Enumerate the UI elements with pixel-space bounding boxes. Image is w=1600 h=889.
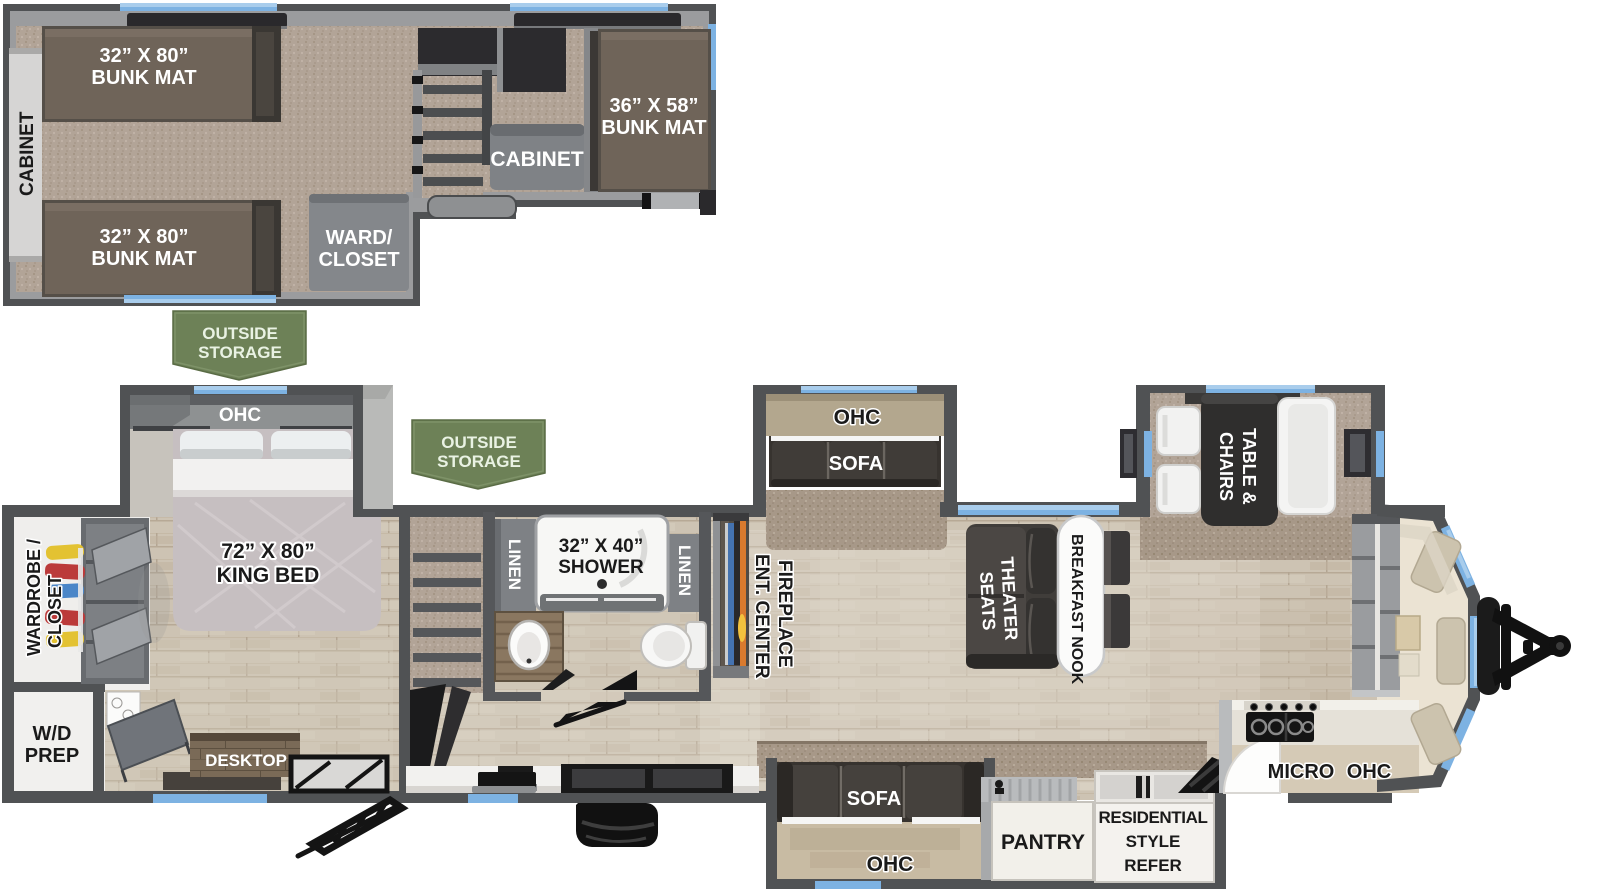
svg-text:32” X 80”: 32” X 80” xyxy=(100,45,189,67)
svg-text:STORAGE: STORAGE xyxy=(198,343,282,362)
svg-text:LINEN: LINEN xyxy=(675,545,694,596)
svg-text:OUTSIDE: OUTSIDE xyxy=(441,433,517,452)
svg-text:72” X 80”: 72” X 80” xyxy=(221,540,314,563)
svg-text:FIREPLACE: FIREPLACE xyxy=(774,560,795,668)
svg-text:CLOSET: CLOSET xyxy=(45,575,65,648)
svg-text:BUNK MAT: BUNK MAT xyxy=(91,67,196,89)
svg-text:CLOSET: CLOSET xyxy=(318,249,399,271)
svg-text:ENT. CENTER: ENT. CENTER xyxy=(751,554,772,679)
svg-text:PREP: PREP xyxy=(25,745,79,767)
svg-text:STORAGE: STORAGE xyxy=(437,452,521,471)
svg-text:SOFA: SOFA xyxy=(847,788,901,810)
svg-text:REFER: REFER xyxy=(1124,856,1182,875)
svg-text:OHC: OHC xyxy=(834,406,881,429)
svg-text:CHAIRS: CHAIRS xyxy=(1216,432,1236,501)
svg-text:CABINET: CABINET xyxy=(17,111,38,196)
svg-text:32” X 40”: 32” X 40” xyxy=(559,536,644,557)
svg-text:WARD/: WARD/ xyxy=(326,227,393,249)
svg-text:KING BED: KING BED xyxy=(217,564,320,587)
svg-text:OHC: OHC xyxy=(219,405,262,426)
svg-text:W/D: W/D xyxy=(33,723,72,745)
svg-text:STYLE: STYLE xyxy=(1126,832,1181,851)
svg-text:SEATS: SEATS xyxy=(976,571,999,631)
svg-text:SOFA: SOFA xyxy=(829,453,883,475)
svg-text:WARDROBE /: WARDROBE / xyxy=(24,539,44,656)
svg-text:BREAKFAST NOOK: BREAKFAST NOOK xyxy=(1068,534,1085,685)
svg-text:SHOWER: SHOWER xyxy=(558,557,644,578)
svg-text:OHC: OHC xyxy=(867,853,914,876)
svg-text:36” X 58”: 36” X 58” xyxy=(610,95,699,117)
svg-text:LINEN: LINEN xyxy=(505,539,524,590)
svg-text:CABINET: CABINET xyxy=(490,148,584,171)
svg-text:RESIDENTIAL: RESIDENTIAL xyxy=(1099,808,1208,827)
svg-text:OUTSIDE: OUTSIDE xyxy=(202,324,278,343)
svg-text:DESKTOP: DESKTOP xyxy=(205,751,287,770)
svg-text:BUNK MAT: BUNK MAT xyxy=(601,117,706,139)
svg-text:32” X 80”: 32” X 80” xyxy=(100,226,189,248)
svg-text:MICRO: MICRO xyxy=(1268,761,1335,783)
svg-text:PANTRY: PANTRY xyxy=(1001,831,1085,854)
svg-text:TABLE &: TABLE & xyxy=(1239,428,1259,505)
svg-text:BUNK MAT: BUNK MAT xyxy=(91,248,196,270)
